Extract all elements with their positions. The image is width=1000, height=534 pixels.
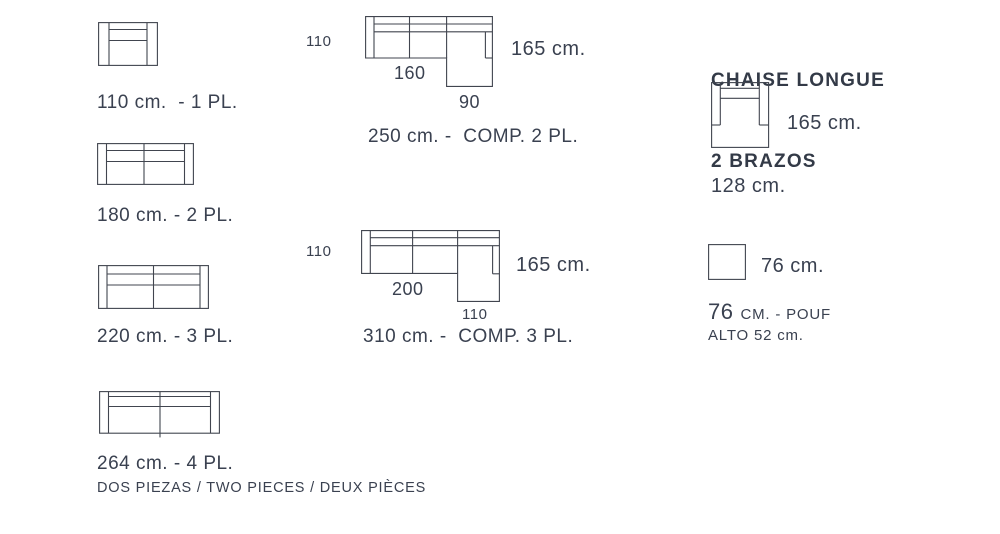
comp2-caption: 250 cm. - COMP. 2 PL. xyxy=(368,126,578,148)
comp3-depth-label: 110 xyxy=(306,243,331,260)
sofa-4pl-diagram xyxy=(99,391,220,438)
chaise-2-brazos-width-label: 128 cm. xyxy=(711,175,786,198)
comp2-total-depth-label: 165 cm. xyxy=(511,38,586,61)
comp2-depth-label: 110 xyxy=(306,33,331,50)
pouf-caption-text: CM. - POUF xyxy=(740,306,831,323)
comp2-diagram xyxy=(365,16,493,87)
heading-line-2: 2 BRAZOS xyxy=(711,148,885,175)
comp3-total-depth-label: 165 cm. xyxy=(516,254,591,277)
sofa-3pl-diagram xyxy=(98,265,209,309)
comp3-chaise-width-label: 110 xyxy=(462,306,487,323)
comp3-seat-width-label: 200 xyxy=(392,279,424,300)
comp3-diagram xyxy=(361,230,500,302)
spec-sheet: 110 cm. - 1 PL. 180 cm. - 2 PL. 220 cm. … xyxy=(0,0,1000,534)
comp2-seat-width-label: 160 xyxy=(394,63,426,84)
chaise-2-brazos-diagram xyxy=(711,82,770,148)
pouf-caption-number: 76 xyxy=(708,299,733,325)
sofa-2pl-diagram xyxy=(97,143,194,185)
sofa-2pl-caption: 180 cm. - 2 PL. xyxy=(97,205,233,227)
chaise-2-brazos-depth-label: 165 cm. xyxy=(787,112,862,135)
sofa-4pl-subcaption: DOS PIEZAS / TWO PIECES / DEUX PIÈCES xyxy=(97,480,426,496)
pouf-size-label: 76 cm. xyxy=(761,255,824,278)
sofa-1pl-caption: 110 cm. - 1 PL. xyxy=(97,92,238,114)
comp2-chaise-width-label: 90 xyxy=(459,92,480,113)
pouf-diagram xyxy=(708,244,746,280)
sofa-3pl-caption: 220 cm. - 3 PL. xyxy=(97,326,233,348)
pouf-height-label: ALTO 52 cm. xyxy=(708,327,804,344)
pouf-caption: 76 CM. - POUF xyxy=(708,299,831,325)
sofa-4pl-caption: 264 cm. - 4 PL. xyxy=(97,453,233,475)
comp3-caption: 310 cm. - COMP. 3 PL. xyxy=(363,326,573,348)
sofa-1pl-diagram xyxy=(98,22,158,66)
